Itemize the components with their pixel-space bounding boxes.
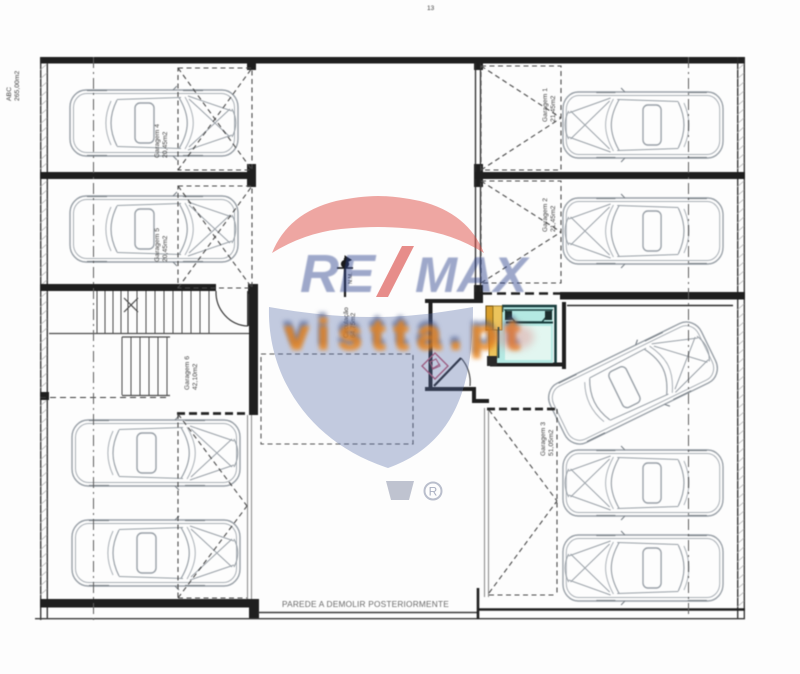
svg-text:13: 13 <box>427 5 435 12</box>
svg-text:42,10m2: 42,10m2 <box>192 363 199 390</box>
svg-text:R: R <box>429 485 438 499</box>
svg-text:20,45m2: 20,45m2 <box>162 131 169 158</box>
svg-text:Garagem 4: Garagem 4 <box>154 124 161 158</box>
svg-text:51,05m2: 51,05m2 <box>548 429 555 456</box>
svg-text:RE: RE <box>300 244 377 304</box>
svg-text:ABC: ABC <box>6 87 13 101</box>
svg-text:MAX: MAX <box>415 246 531 303</box>
svg-text:Garagem 3: Garagem 3 <box>540 422 547 456</box>
svg-text:PAREDE A DEMOLIR POSTERIORMENT: PAREDE A DEMOLIR POSTERIORMENTE <box>282 599 449 609</box>
svg-text:265,00m2: 265,00m2 <box>14 71 21 101</box>
svg-text:21,45m2: 21,45m2 <box>550 95 557 122</box>
svg-text:Garagem 1: Garagem 1 <box>542 88 549 122</box>
svg-text:21,45m2: 21,45m2 <box>550 205 557 232</box>
svg-text:vistta.pt: vistta.pt <box>285 311 529 358</box>
svg-text:Garagem 2: Garagem 2 <box>542 198 549 232</box>
svg-text:Garagem 5: Garagem 5 <box>154 228 161 262</box>
svg-text:20,45m2: 20,45m2 <box>162 235 169 262</box>
svg-text:Garagem 6: Garagem 6 <box>184 356 191 390</box>
